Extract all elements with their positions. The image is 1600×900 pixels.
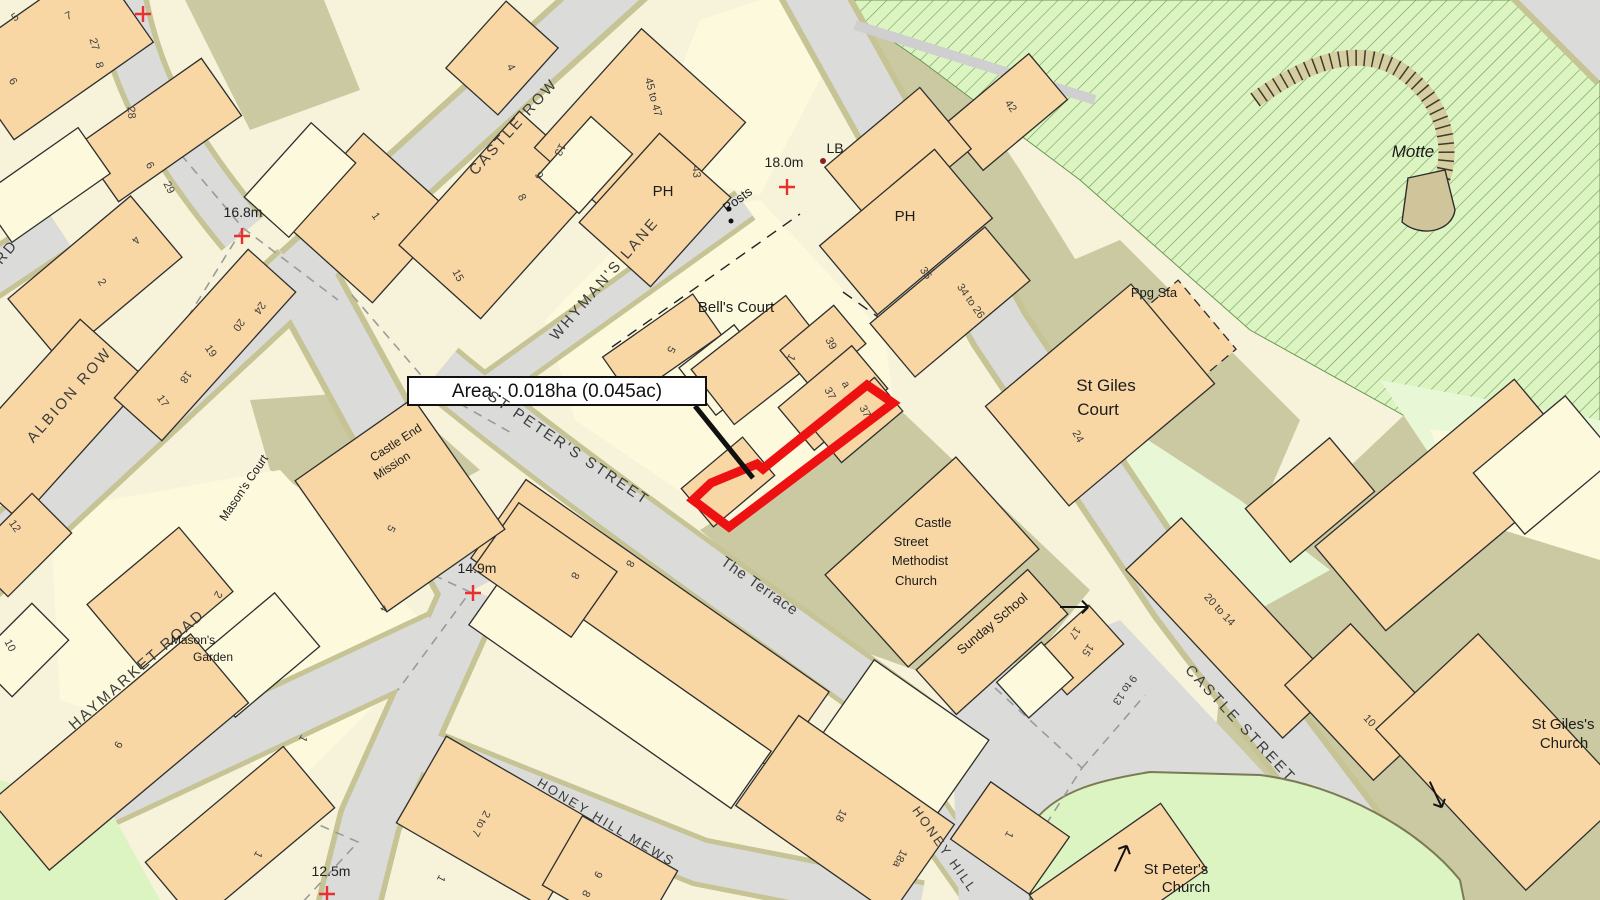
area-annotation[interactable]: Area : 0.018ha (0.045ac) [408, 377, 706, 405]
map-label: Church [1540, 735, 1588, 752]
map-label: Garden [193, 650, 233, 664]
map-label: 18.0m [765, 154, 804, 170]
map-label: Church [895, 573, 937, 588]
map-label: Bell's Court [698, 299, 775, 316]
area-annotation-label: Area : 0.018ha (0.045ac) [452, 381, 662, 402]
map-label: Motte [1392, 142, 1435, 161]
map-label: 12.5m [312, 863, 351, 879]
map-label: 14.9m [458, 560, 497, 576]
map-label: St Giles's [1532, 716, 1595, 733]
map-label: PH [653, 183, 674, 200]
map-label: Court [1077, 400, 1119, 419]
map-label: PH [895, 208, 916, 225]
map-label: LB [826, 140, 843, 156]
map-label: St Peter's [1144, 861, 1209, 878]
map-label: 16.8m [224, 204, 263, 220]
map-label: Street [894, 534, 929, 549]
map-label: Castle [915, 515, 952, 530]
map-label: Church [1162, 879, 1210, 896]
map-label: Methodist [892, 553, 949, 568]
map-canvas: Area : 0.018ha (0.045ac) CASTLE ROWWHYMA… [0, 0, 1600, 900]
map-label: 43 [689, 165, 702, 178]
map-label: 28 [124, 106, 137, 119]
map-label: St Giles [1076, 376, 1136, 395]
letterbox-dot [820, 158, 826, 164]
os-map: Area : 0.018ha (0.045ac) CASTLE ROWWHYMA… [0, 0, 1600, 900]
map-label: Ppg Sta [1131, 285, 1178, 300]
map-label: Mason's [171, 633, 215, 647]
